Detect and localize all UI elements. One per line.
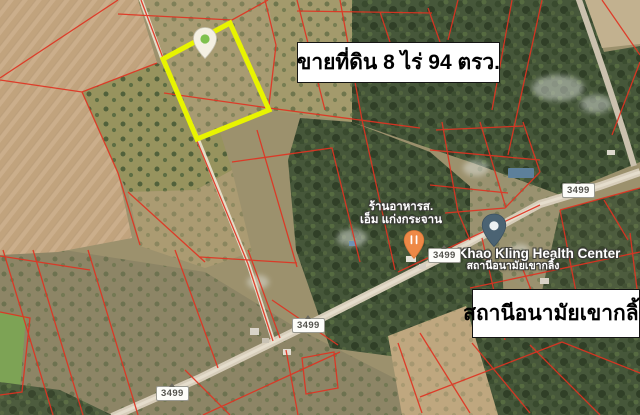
road-badge-3499: 3499 <box>156 386 189 401</box>
restaurant-label[interactable]: ร้านอาหารส. เอ็ม แก่งกระจาน <box>326 201 476 226</box>
road-badge-3499: 3499 <box>562 183 595 198</box>
road-badge-3499: 3499 <box>292 318 325 333</box>
health-center-label-th[interactable]: สถานีอนามัยเขากลิ้ง <box>453 261 573 273</box>
road-badge-3499: 3499 <box>428 248 461 263</box>
restaurant-label-line2: เอ็ม แก่งกระจาน <box>326 214 476 227</box>
for-sale-sign-box: ขายที่ดิน 8 ไร่ 94 ตรว. <box>297 42 500 83</box>
satellite-map-canvas[interactable]: ร้านอาหารส. เอ็ม แก่งกระจาน Khao Kling H… <box>0 0 640 415</box>
restaurant-label-line1: ร้านอาหารส. <box>369 201 433 213</box>
health-station-sign-box: สถานีอนามัยเขากลิ้ง <box>472 289 640 338</box>
